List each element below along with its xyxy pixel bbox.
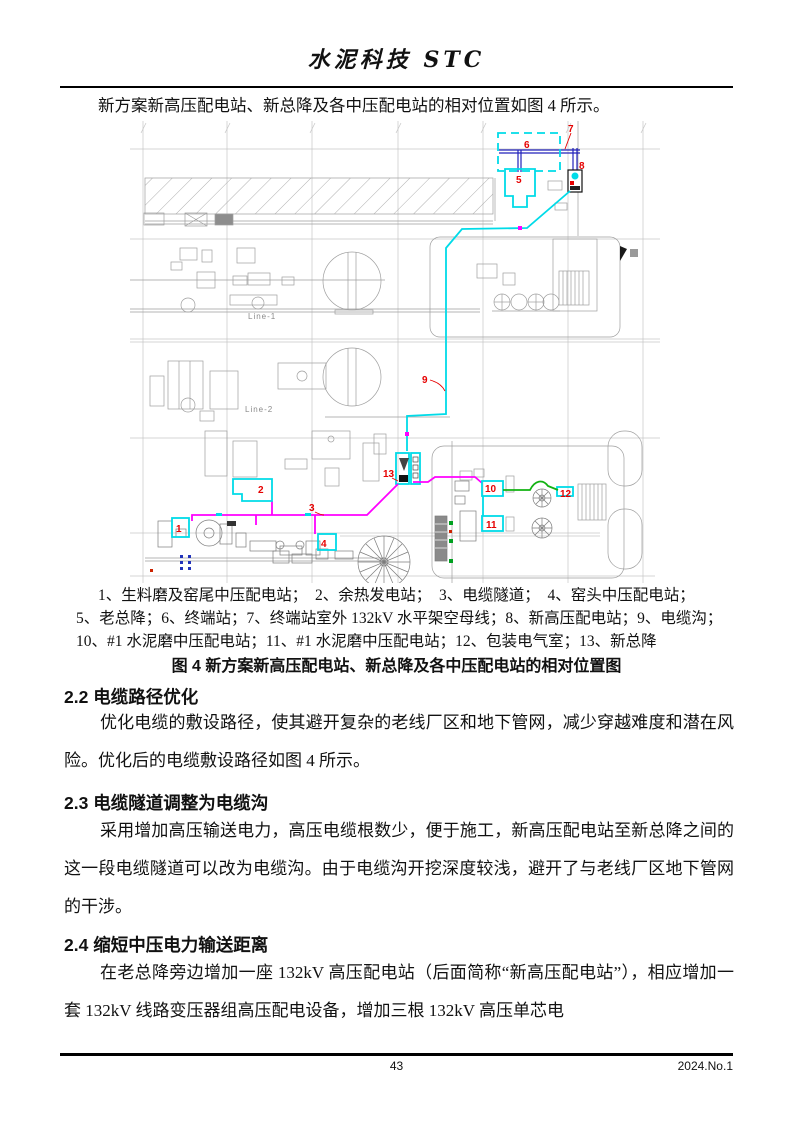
journal-title: 水泥科技 STC (0, 42, 793, 74)
line1-label: Line-1 (248, 312, 276, 321)
site-plan-svg: Line-1 Line-2 (130, 121, 660, 583)
footer-rule (60, 1053, 733, 1056)
figure-marker-12: 12 (560, 489, 572, 500)
header-rule (60, 86, 733, 88)
legend-line-1: 1、生料磨及窑尾中压配电站； 2、余热发电站； 3、电缆隧道； 4、窑头中压配电… (76, 584, 738, 607)
mv-green-route (503, 481, 558, 490)
figure-marker-8: 8 (579, 161, 585, 172)
new-main-substation-cluster (396, 453, 420, 484)
page-number: 43 (0, 1059, 793, 1073)
figure-legend: 1、生料磨及窑尾中压配电站； 2、余热发电站； 3、电缆隧道； 4、窑头中压配电… (76, 584, 738, 653)
hatched-building (145, 178, 493, 214)
line2-label: Line-2 (245, 405, 273, 414)
new-hv-substation-box (568, 170, 582, 192)
terminal-station-outline (498, 133, 560, 171)
figure-marker-1: 1 (176, 524, 182, 535)
figure-marker-10: 10 (485, 484, 497, 495)
station-box-2 (233, 479, 272, 501)
journal-page: 水泥科技 STC 新方案新高压配电站、新总降及各中压配电站的相对位置如图 4 所… (0, 0, 793, 1122)
figure-marker-2: 2 (258, 485, 264, 496)
figure-caption: 图 4 新方案新高压配电站、新总降及各中压配电站的相对位置图 (0, 652, 793, 676)
figure-marker-5: 5 (516, 175, 522, 186)
section-2-3-paragraph: 采用增加高压输送电力，高压电缆根数少，便于施工，新高压配电站至新总降之间的这一段… (64, 812, 734, 926)
intro-paragraph: 新方案新高压配电站、新总降及各中压配电站的相对位置如图 4 所示。 (64, 92, 734, 120)
flag-marker (620, 246, 627, 261)
figure-marker-3: 3 (309, 503, 315, 514)
cable-trench-route (407, 191, 570, 451)
issue-label: 2024.No.1 (678, 1059, 733, 1073)
legend-line-3: 10、#1 水泥磨中压配电站；11、#1 水泥磨中压配电站；12、包装电气室；1… (76, 630, 738, 653)
plan-machinery (150, 246, 627, 583)
plan-linework (130, 121, 642, 583)
section-2-2-paragraph: 优化电缆的敷设路径，使其避开复杂的老线厂区和地下管网，减少穿越难度和潜在风险。优… (64, 704, 734, 780)
figure-marker-9: 9 (422, 375, 428, 386)
figure-marker-4: 4 (321, 539, 327, 550)
legend-line-2: 5、老总降；6、终端站；7、终端站室外 132kV 水平架空母线；8、新高压配电… (76, 607, 738, 630)
site-plan-figure: Line-1 Line-2 (130, 121, 660, 583)
section-2-4-paragraph: 在老总降旁边增加一座 132kV 高压配电站（后面简称“新高压配电站”），相应增… (64, 954, 734, 1030)
figure-marker-6: 6 (524, 140, 530, 151)
figure-marker-11: 11 (486, 520, 497, 531)
